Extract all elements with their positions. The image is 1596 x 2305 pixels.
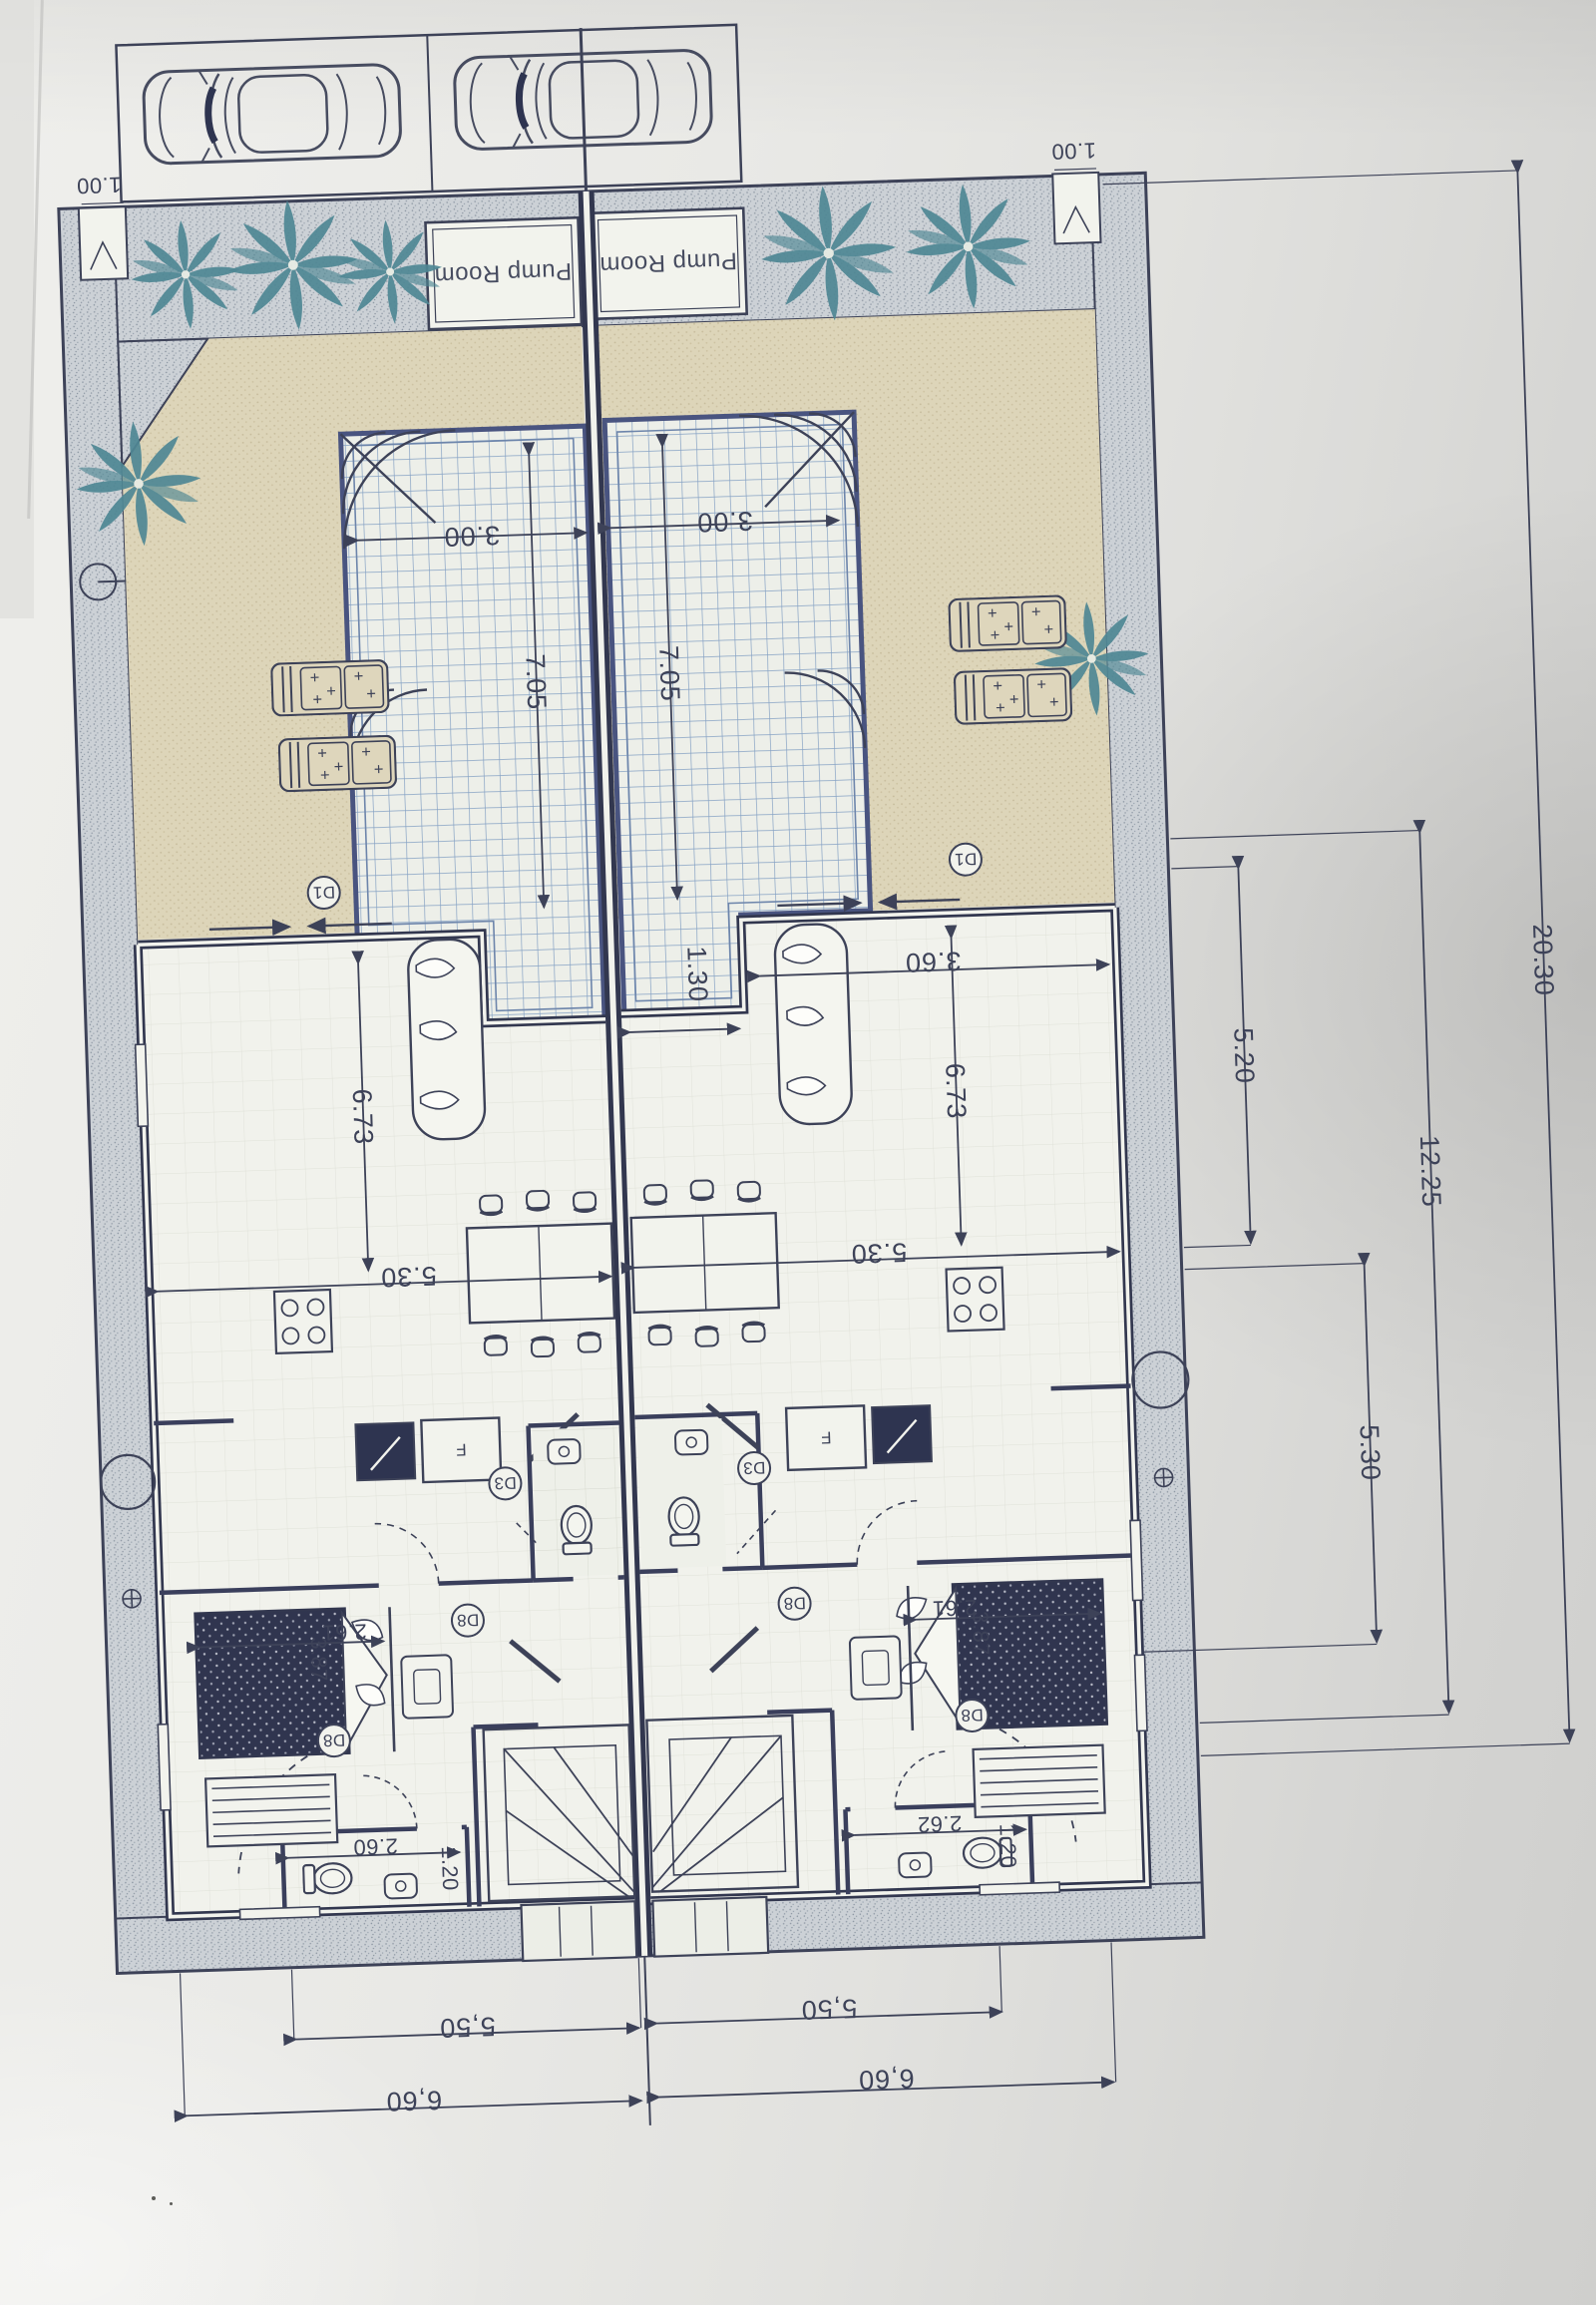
dim-gate-left: 1.00 bbox=[76, 173, 122, 198]
dim-living-width-right: 5.30 bbox=[850, 1237, 908, 1269]
street-parking bbox=[116, 25, 741, 202]
dim-unit-inner-left: 5,50 bbox=[439, 2012, 497, 2044]
pump-room-label: Pump Room bbox=[434, 257, 573, 289]
dim-bath-depth-left: 1.20 bbox=[437, 1846, 463, 1892]
fridge-label: F bbox=[820, 1428, 832, 1447]
dim-pool-width-right: 3.00 bbox=[696, 506, 754, 538]
pump-room-left: Pump Room bbox=[425, 217, 581, 329]
dim-unit-outer-right: 6,60 bbox=[858, 2064, 916, 2096]
dim-side-lower: 5.30 bbox=[1355, 1424, 1387, 1482]
dim-bath-width-right: 2.62 bbox=[917, 1811, 963, 1837]
dim-lounge-width: 3.60 bbox=[905, 946, 963, 977]
wardrobe-right bbox=[974, 1745, 1105, 1817]
dim-unit-inner-right: 5,50 bbox=[800, 1993, 858, 2025]
wardrobe-left bbox=[205, 1774, 337, 1846]
gate-niche-right bbox=[1052, 173, 1100, 243]
door-tag-d3: D3 bbox=[494, 1473, 517, 1493]
paper-speck bbox=[152, 2196, 156, 2200]
dim-pool-nook: 1.30 bbox=[681, 946, 713, 1003]
door-tag-d1: D1 bbox=[312, 883, 335, 903]
door-tag-d8: D8 bbox=[456, 1610, 479, 1630]
daybed-left bbox=[407, 939, 486, 1140]
floorplan-drawing: Pump Room Pump Room bbox=[28, 0, 1596, 2193]
dim-living-width-left: 5.30 bbox=[380, 1261, 438, 1293]
survey-mark bbox=[123, 1590, 142, 1609]
wc-right bbox=[636, 1418, 726, 1569]
floorplan-svg: Pump Room Pump Room bbox=[28, 0, 1596, 2193]
fridge-label: F bbox=[456, 1440, 468, 1459]
scanned-floorplan-photo: Pump Room Pump Room bbox=[0, 0, 1596, 2305]
dim-unit-outer-left: 6,60 bbox=[385, 2085, 443, 2116]
survey-mark bbox=[1154, 1468, 1173, 1487]
dim-site-depth: 20.30 bbox=[1527, 924, 1559, 997]
dim-living-length-right: 6.73 bbox=[940, 1062, 972, 1120]
dim-gate-right: 1.00 bbox=[1051, 138, 1097, 164]
car bbox=[143, 64, 401, 164]
wc-left bbox=[533, 1427, 622, 1578]
dim-pool-length-right: 7.05 bbox=[653, 645, 685, 703]
dim-side-upper: 5.20 bbox=[1228, 1027, 1260, 1085]
dim-bath-depth-right: 1.20 bbox=[995, 1823, 1020, 1869]
paper-speck bbox=[170, 2202, 173, 2205]
door-tag-d1: D1 bbox=[954, 849, 977, 869]
dim-pool-width-left: 3.00 bbox=[443, 521, 501, 553]
door-tag-d3: D3 bbox=[742, 1458, 765, 1478]
door-tag-d8: D8 bbox=[322, 1730, 345, 1750]
dim-bedroom-length-left: 3.87 bbox=[306, 1637, 332, 1683]
dim-living-length-left: 6.73 bbox=[347, 1088, 379, 1146]
dim-bath-width-left: 2.60 bbox=[353, 1833, 399, 1859]
dim-pool-length-left: 7.05 bbox=[520, 653, 552, 711]
dim-side-building: 12.25 bbox=[1414, 1135, 1446, 1209]
pump-room-right: Pump Room bbox=[591, 208, 746, 319]
door-tag-d8: D8 bbox=[961, 1706, 984, 1726]
door-tag-d8: D8 bbox=[783, 1593, 806, 1613]
gate-niche-left bbox=[79, 206, 128, 280]
paper-edge-strip bbox=[0, 0, 34, 618]
dim-bedroom-length-right: 3.87 bbox=[968, 1611, 994, 1657]
pump-room-label: Pump Room bbox=[599, 247, 738, 279]
daybed-right bbox=[774, 924, 853, 1125]
